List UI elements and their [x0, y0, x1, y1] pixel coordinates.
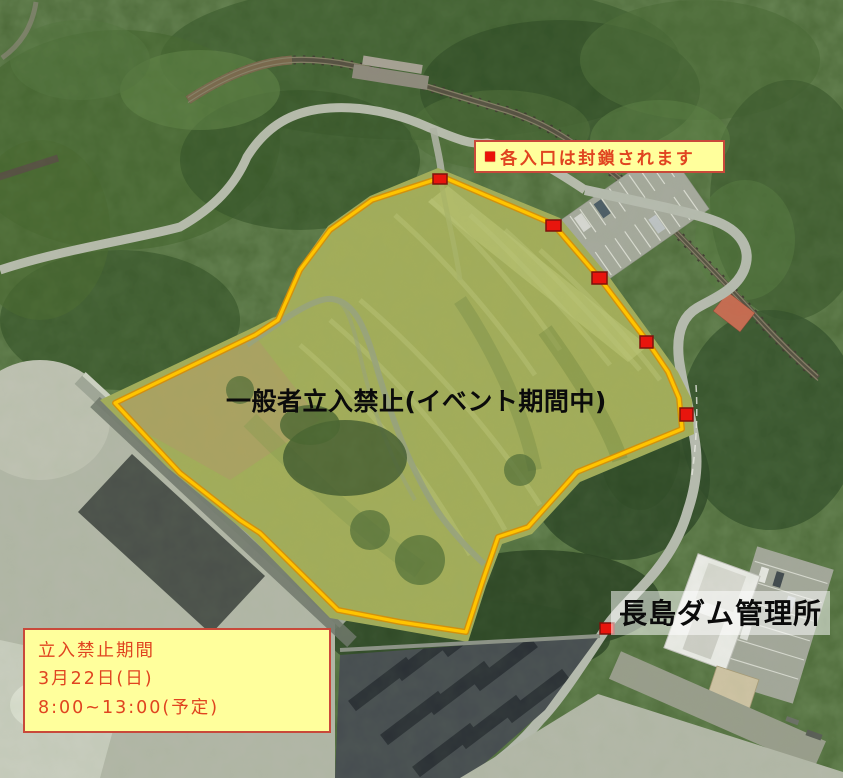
period-line-time: 8:00~13:00(予定) — [38, 694, 329, 722]
red-square-bullet-icon: ■ — [484, 149, 496, 164]
entrance-closure-text: 各入口は封鎖されます — [500, 144, 695, 169]
entrance-marker — [546, 220, 561, 231]
entrance-marker — [592, 272, 607, 284]
entrance-marker — [433, 174, 447, 184]
restriction-period-box: 立入禁止期間 3月22日(日) 8:00~13:00(予定) — [23, 628, 331, 733]
no-entry-label: 一般者立入禁止(イベント期間中) — [226, 382, 607, 418]
dam-office-label: 長島ダム管理所 — [611, 591, 830, 635]
period-line-date: 3月22日(日) — [38, 665, 329, 693]
entrance-closure-banner: ■ 各入口は封鎖されます — [474, 140, 725, 173]
period-line-title: 立入禁止期間 — [38, 637, 329, 665]
aerial-map: ■ 各入口は封鎖されます 一般者立入禁止(イベント期間中) 長島ダム管理所 立入… — [0, 0, 843, 778]
entrance-marker — [640, 336, 653, 348]
entrance-marker — [680, 408, 693, 421]
